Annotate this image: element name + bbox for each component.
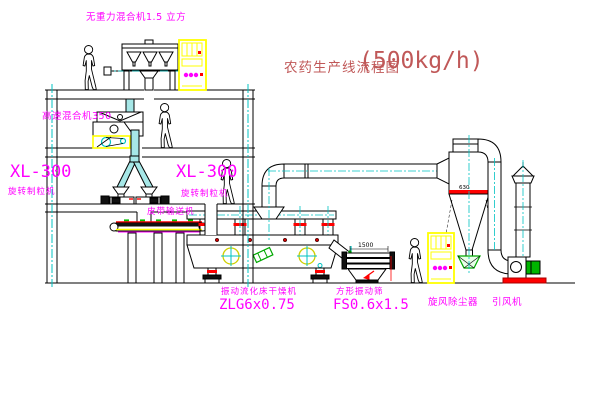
label-granulator-left-model: XL-300 bbox=[10, 164, 71, 181]
diagram-title-capacity: (500kg/h) bbox=[359, 48, 484, 74]
fan-motor bbox=[526, 261, 540, 274]
belt-conveyor bbox=[110, 219, 207, 232]
label-granulator-left-name: 旋转制粒机 bbox=[8, 188, 56, 197]
label-dryer-model: ZLG6x0.75 bbox=[219, 298, 295, 312]
exhaust-duct bbox=[254, 164, 443, 240]
support-columns bbox=[128, 233, 184, 283]
worker-second-floor bbox=[159, 104, 172, 148]
control-cabinet-top bbox=[179, 40, 206, 90]
label-screen-name: 方形振动筛 bbox=[336, 288, 384, 297]
induced-draft-fan-assembly bbox=[488, 158, 546, 283]
cyclone-diameter-dim: 630 bbox=[459, 185, 470, 191]
label-granulator-right-model: XL-300 bbox=[176, 164, 237, 181]
y-pipe-left bbox=[117, 161, 136, 187]
control-cabinet-ground bbox=[428, 233, 454, 283]
label-belt-conveyor: 皮带输送机 bbox=[147, 208, 195, 217]
high-speed-mixer bbox=[93, 99, 143, 158]
mixer-discharge-pipe bbox=[131, 130, 139, 158]
label-granulator-right-name: 旋转制粒机 bbox=[181, 190, 229, 199]
pesticide-line-flow-diagram: 630 1500 bbox=[0, 0, 600, 403]
label-gravity-mixer: 无重力混合机1.5 立方 bbox=[86, 13, 186, 23]
mixer-paddles bbox=[127, 52, 173, 66]
screen-width-dim: 1500 bbox=[358, 242, 373, 249]
indicator-dot bbox=[198, 51, 201, 54]
fan-housing bbox=[503, 257, 546, 283]
label-cyclone: 旋风除尘器 bbox=[428, 298, 478, 308]
label-dryer-name: 振动流化床干燥机 bbox=[221, 288, 297, 297]
fan-base bbox=[503, 278, 546, 283]
worker-top-floor bbox=[83, 46, 96, 90]
label-high-speed-mixer: 高速混合机350 bbox=[42, 112, 112, 122]
label-fan: 引风机 bbox=[492, 298, 522, 308]
gravity-free-mixer bbox=[104, 40, 188, 90]
label-screen-model: FS0.6x1.5 bbox=[333, 298, 409, 312]
dryer-feed-chute bbox=[206, 204, 217, 235]
vibrating-screen: 1500 bbox=[342, 242, 395, 283]
worker-ground bbox=[409, 239, 422, 283]
y-pipe-right bbox=[133, 161, 153, 187]
